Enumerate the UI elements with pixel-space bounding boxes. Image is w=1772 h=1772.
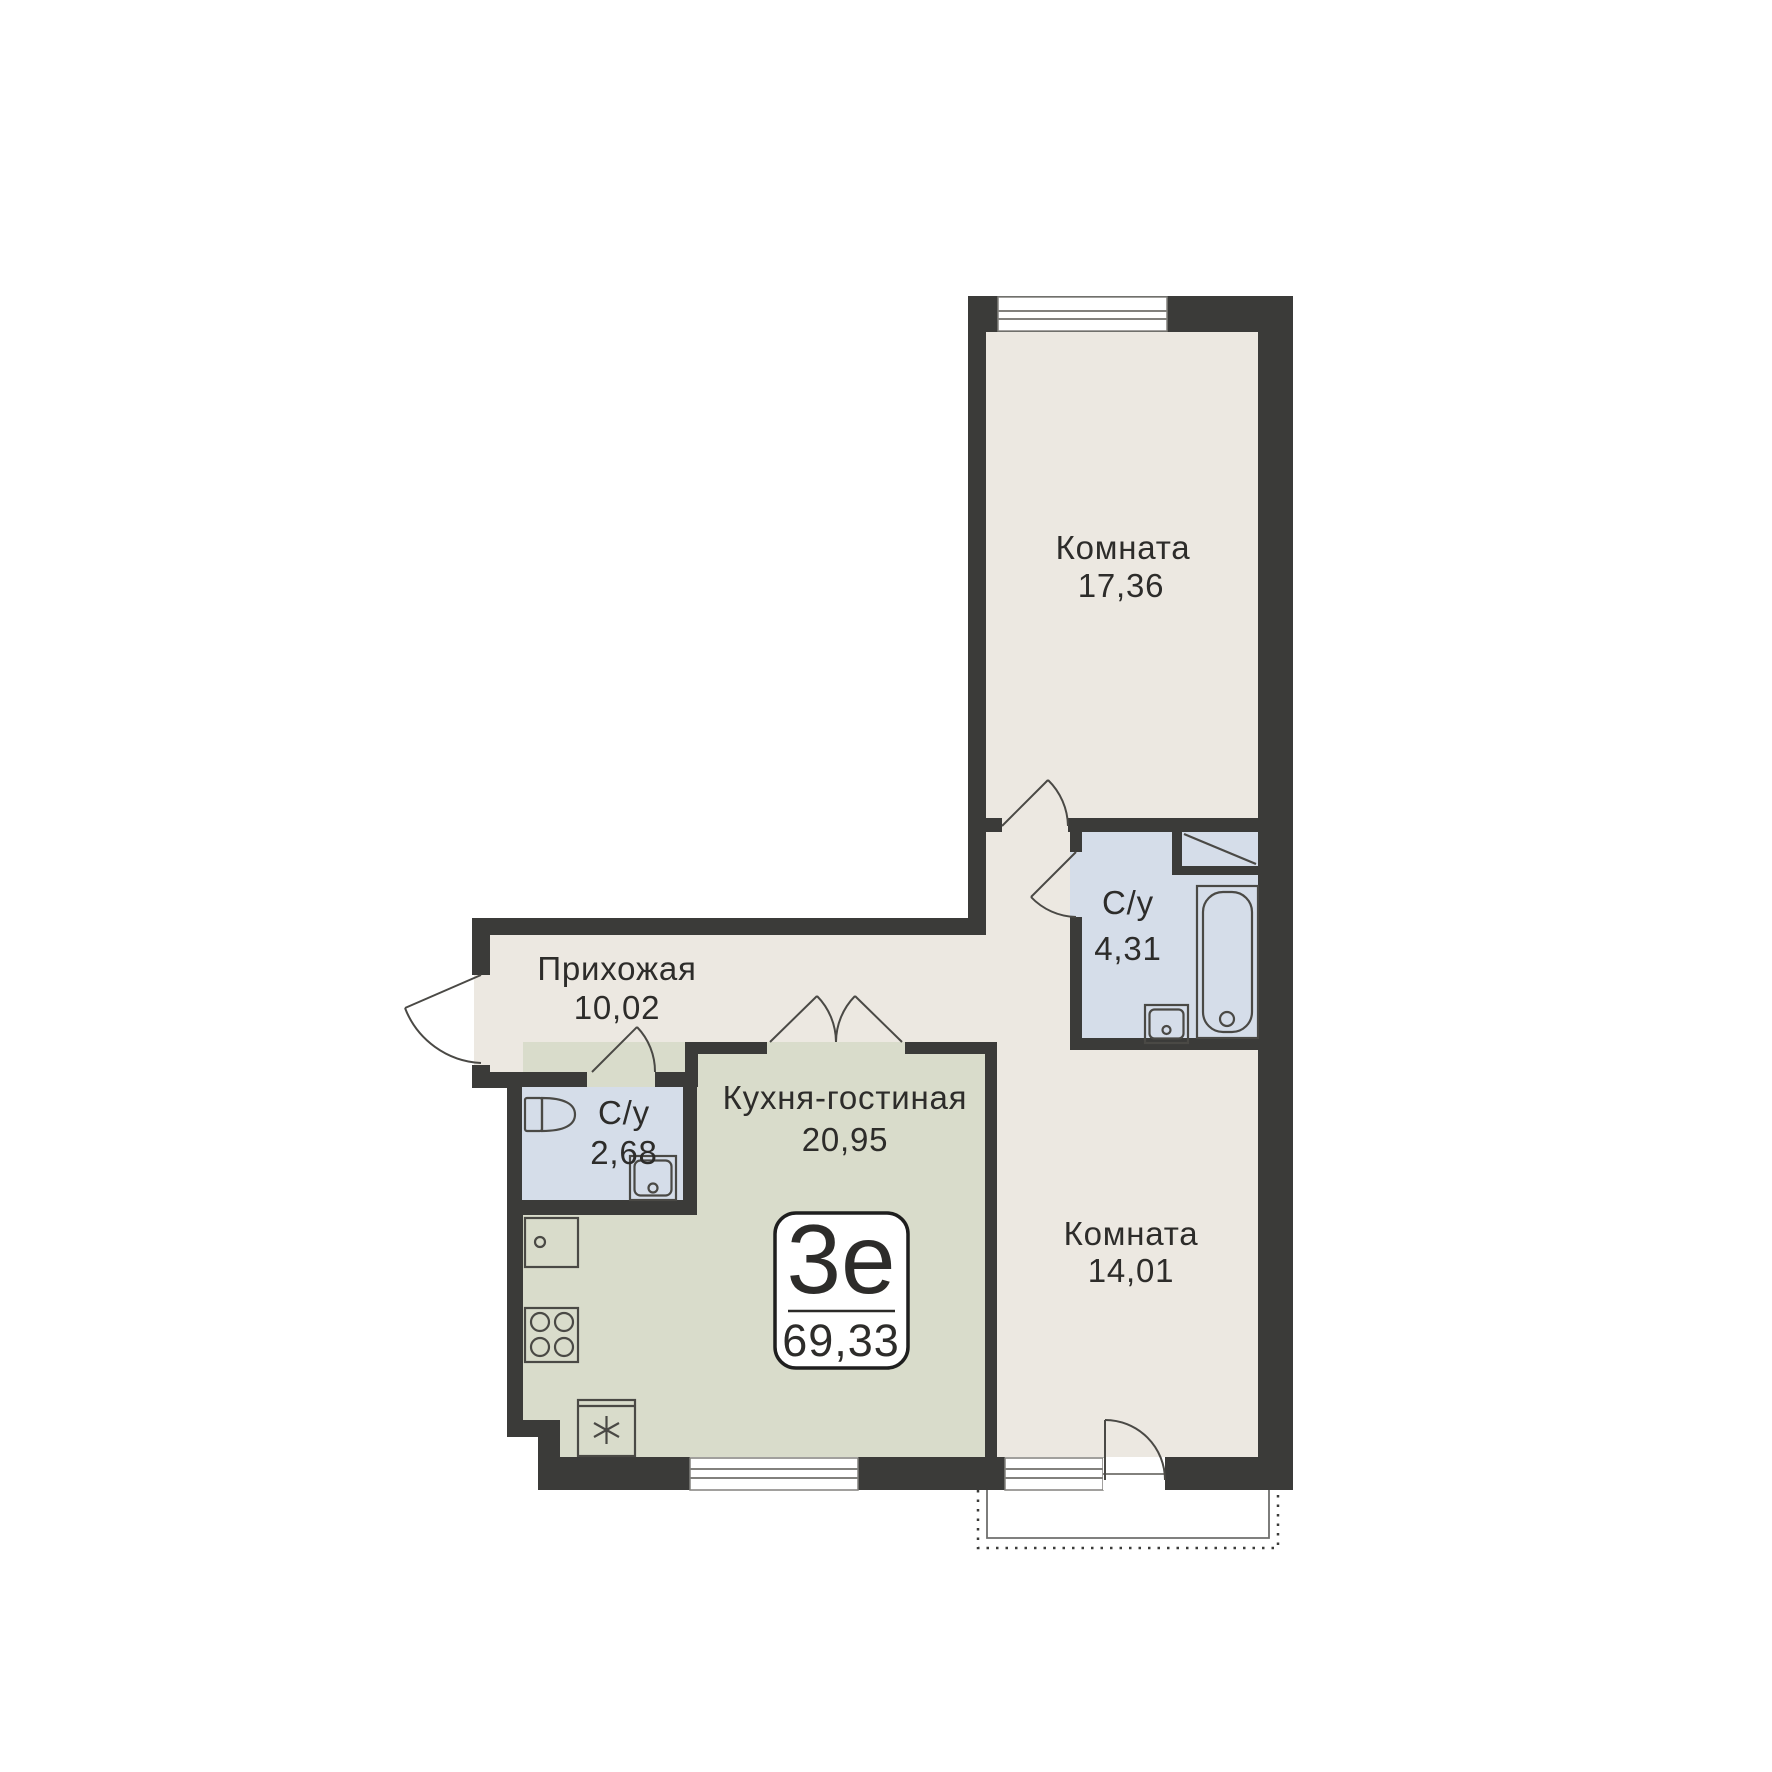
wall-su431-left-upper <box>1070 832 1082 852</box>
wall-kitchen-top-right <box>905 1042 997 1054</box>
apartment-badge: 3е 69,33 <box>775 1204 908 1368</box>
su431-area: 4,31 <box>1094 930 1161 967</box>
window-room17 <box>998 297 1167 331</box>
wall-su268-top-left <box>507 1072 587 1087</box>
su431-label: С/у <box>1102 884 1154 921</box>
balcony-icon <box>978 1490 1278 1548</box>
wall-bottom-pier <box>858 1457 1005 1490</box>
floor-plan-svg: Комната 17,36 С/у 4,31 Прихожая 10,02 С/… <box>0 0 1772 1772</box>
floor-plan-page: Комната 17,36 С/у 4,31 Прихожая 10,02 С/… <box>0 0 1772 1772</box>
window-kitchen <box>690 1458 858 1490</box>
wall-kitchen-top-left <box>685 1042 767 1054</box>
wall-room17-bottom <box>1068 818 1258 832</box>
wall-hall-left-upper <box>472 918 490 975</box>
wall-room17-bottom-stub <box>986 818 1002 832</box>
window-room14 <box>1005 1458 1103 1490</box>
su268-label: С/у <box>598 1094 650 1131</box>
su268-area: 2,68 <box>590 1134 657 1171</box>
entry-door-arc-icon <box>405 975 481 1063</box>
room17-area: 17,36 <box>1078 567 1165 604</box>
kitchen-label: Кухня-гостиная <box>723 1079 968 1116</box>
balcony-dotted-outline <box>978 1490 1278 1548</box>
wall-kitchen-left <box>507 1215 523 1437</box>
room17-label: Комната <box>1056 529 1191 566</box>
balcony-door-threshold <box>1103 1458 1165 1490</box>
wall-hall-top <box>472 918 986 935</box>
hallway-label: Прихожая <box>537 950 696 987</box>
badge-apartment-type: 3е <box>786 1204 895 1314</box>
balcony-inner-line <box>987 1490 1269 1538</box>
wall-su431-left-lower <box>1070 917 1082 1043</box>
kitchen-area: 20,95 <box>802 1121 889 1158</box>
room14-label: Комната <box>1064 1215 1199 1252</box>
hallway-area: 10,02 <box>574 989 661 1026</box>
wall-su268-right <box>683 1072 697 1215</box>
wall-bottom-right <box>1165 1457 1293 1490</box>
wall-tower-left <box>968 332 986 935</box>
badge-total-area: 69,33 <box>782 1315 900 1366</box>
wall-right <box>1258 296 1293 1490</box>
room14-area: 14,01 <box>1088 1252 1175 1289</box>
wall-su268-bottom <box>507 1200 697 1215</box>
wall-su268-left <box>507 1072 522 1215</box>
wall-kitchen-room14-divider <box>985 1042 997 1457</box>
wall-shaft-bottom <box>1172 866 1258 875</box>
